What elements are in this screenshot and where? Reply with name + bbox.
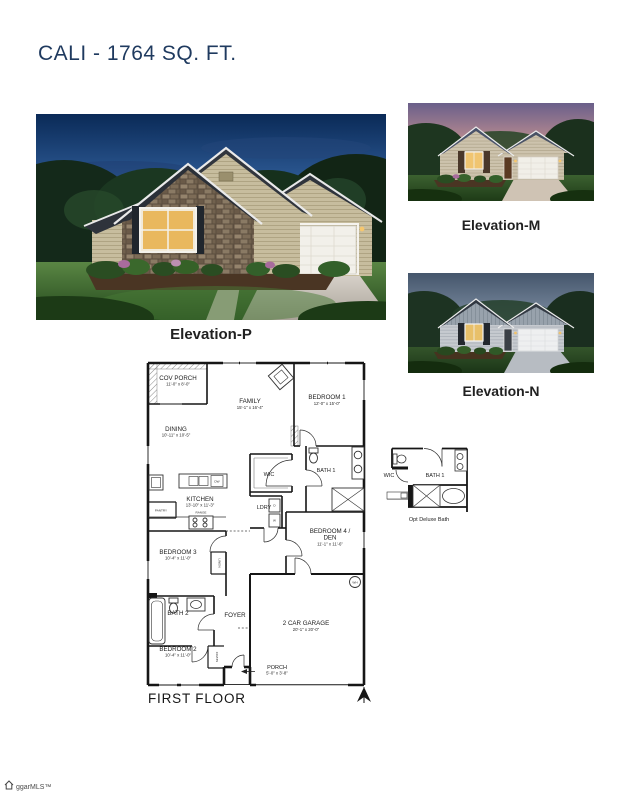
- room-label-bath2: BATH 2: [167, 610, 189, 617]
- opt-bath-wall-block2: [408, 485, 413, 507]
- opt-deluxe-bath-detail: WIC BATH 1 Opt Deluxe Bath: [378, 444, 475, 529]
- coats-label: COATS: [215, 652, 219, 662]
- room-dims-dining: 10'-11" x 10'-5": [162, 433, 191, 438]
- room-dims-family: 15'-1" x 16'-4": [237, 405, 264, 410]
- mls-logo: ggarMLS™: [3, 779, 51, 791]
- room-dims-garage: 20'-1" x 20'-0": [293, 627, 320, 632]
- room-dims-bedroom1: 12'-0" x 15'-0": [314, 401, 341, 406]
- mls-logo-icon: [3, 779, 15, 791]
- room-label-bedroom4-line2: DEN: [323, 535, 336, 542]
- room-dims-bedroom3: 10'-4" x 11'-0": [165, 556, 192, 561]
- room-dims-bedroom4: 11'-1" x 11'-6": [317, 542, 343, 547]
- exterior-walls: [148, 363, 364, 685]
- elevation-photo-n: [408, 273, 594, 373]
- porch-arrow-icon: [241, 669, 255, 674]
- room-labels: COV PORCH 11'-0" x 8'-0" FAMILY 15'-1" x…: [148, 375, 358, 706]
- room-label-wic: WIC: [264, 472, 275, 478]
- opt-bath-bath1-label: BATH 1: [426, 473, 445, 479]
- floor-plan-caption: FIRST FLOOR: [148, 691, 246, 706]
- range-label: RANGE: [195, 511, 206, 515]
- elevation-photo-p: [36, 114, 386, 320]
- north-arrow-icon: [357, 687, 371, 703]
- elevation-label-p: Elevation-P: [36, 326, 386, 343]
- opt-bath-caption: Opt Deluxe Bath: [409, 517, 449, 523]
- room-label-garage: 2 CAR GARAGE: [283, 620, 329, 627]
- room-label-family: FAMILY: [239, 398, 261, 405]
- garage-door-opening: [256, 683, 348, 688]
- room-dims-bedroom2: 10'-4" x 11'-0": [165, 653, 192, 658]
- room-label-ldry: LDRY: [257, 505, 272, 511]
- house-illustration-n: [408, 273, 594, 373]
- washer-label: W: [273, 519, 276, 523]
- flyer-page: CALI - 1764 SQ. FT.: [0, 0, 618, 800]
- linen-label: LINEN: [218, 558, 222, 567]
- room-label-bedroom1: BEDROOM 1: [308, 394, 346, 401]
- mls-logo-text: ggarMLS™: [16, 784, 51, 791]
- house-illustration-m: [408, 103, 594, 201]
- room-label-bath1: BATH 1: [317, 468, 336, 474]
- elevation-photo-m: [408, 103, 594, 201]
- elevation-label-m: Elevation-M: [408, 217, 594, 233]
- house-illustration-p: [36, 114, 386, 320]
- opt-bath-wall-block1: [392, 467, 408, 470]
- elevation-label-n: Elevation-N: [408, 383, 594, 399]
- opt-bath-drawing: WIC BATH 1 Opt Deluxe Bath: [378, 444, 475, 524]
- room-dims-cov-porch: 11'-0" x 8'-0": [166, 382, 190, 387]
- room-label-foyer: FOYER: [224, 612, 246, 619]
- page-title: CALI - 1764 SQ. FT.: [38, 42, 237, 66]
- opt-bath-wic-label: WIC: [384, 473, 395, 479]
- floor-plan-drawing: COV PORCH 11'-0" x 8'-0" FAMILY 15'-1" x…: [145, 356, 375, 706]
- dishwasher-label: DW: [214, 480, 219, 484]
- room-dims-porch: 5'-0" x 3'-8": [266, 671, 288, 676]
- room-dims-kitchen: 13'-10" x 11'-3": [186, 503, 215, 508]
- pantry-label: PANTRY: [155, 509, 167, 513]
- floor-plan: COV PORCH 11'-0" x 8'-0" FAMILY 15'-1" x…: [145, 356, 375, 711]
- water-heater-label: WH: [352, 580, 357, 584]
